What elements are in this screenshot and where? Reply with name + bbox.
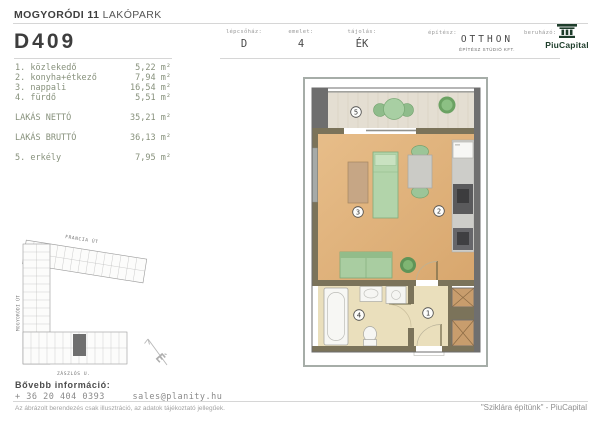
field-floor-value: 4: [276, 38, 326, 50]
architect-sub: ÉPÍTÉSZ STÚDIÓ KFT.: [452, 47, 522, 52]
living-window: [313, 148, 318, 202]
room-name: 3. nappali: [15, 83, 66, 93]
gross-value: 36,13 m²: [130, 133, 171, 143]
unit-id-underline: [14, 58, 172, 59]
dining-table: [408, 155, 432, 188]
balcony-railing: [328, 91, 478, 93]
balcony-window: [366, 130, 416, 132]
wall-interior: [312, 280, 480, 286]
room-row: 4. fürdő 5,51 m²: [15, 93, 171, 103]
room-name: 1. közlekedő: [15, 63, 76, 73]
site-highlighted-unit: [73, 334, 86, 356]
developer-name: PiuCapital: [541, 40, 593, 50]
svg-text:1: 1: [426, 309, 430, 317]
bed: [373, 152, 398, 218]
street-label-left: MOGYORÓDI ÚT: [16, 295, 21, 331]
room-name: 2. konyha+étkező: [15, 73, 97, 83]
bathtub: [324, 288, 348, 345]
balcony-area: [312, 88, 478, 128]
field-staircase-value: D: [218, 38, 270, 50]
tagline: "Sziklára építünk" - PiuCapital: [481, 403, 587, 412]
project-title: MOGYORÓDI 11 LAKÓPARK: [14, 9, 162, 21]
north-label: É: [153, 350, 169, 365]
balcony-name: 5. erkély: [15, 153, 61, 163]
gross-area-row: LAKÁS BRUTTÓ 36,13 m²: [15, 133, 171, 143]
room-number-2: 2: [434, 206, 445, 217]
room-name: 4. fürdő: [15, 93, 56, 103]
toilet: [364, 327, 377, 347]
room-area: 16,54 m²: [130, 83, 171, 93]
balcony-plant: [439, 97, 456, 114]
room-number-1: 1: [423, 308, 434, 319]
room-area: 5,22 m²: [135, 63, 171, 73]
room-number-5: 5: [351, 107, 362, 118]
net-value: 35,21 m²: [130, 113, 171, 123]
site-plan: FRANCIA ÚT MOGYORÓDI ÚT ZÁSZLÓS U. É: [15, 226, 190, 378]
room-area: 7,94 m²: [135, 73, 171, 83]
north-arrow-icon: É: [145, 339, 169, 365]
column-icon: [555, 24, 579, 39]
field-staircase-label: lépcsőház:: [218, 29, 270, 35]
field-orientation: tájolás: ÉK: [336, 29, 388, 50]
field-orientation-value: ÉK: [336, 38, 388, 50]
gross-label: LAKÁS BRUTTÓ: [15, 133, 76, 143]
washing-machine: [386, 287, 406, 304]
room-number-3: 3: [353, 207, 364, 218]
room-area: 5,51 m²: [135, 93, 171, 103]
svg-text:4: 4: [357, 311, 361, 319]
architect-name: OTTHON: [452, 34, 522, 45]
shaft-lower: [452, 320, 474, 346]
living-plant: [400, 257, 416, 273]
floorplan-datasheet: MOGYORÓDI 11 LAKÓPARK D409 lépcsőház: D …: [0, 0, 600, 424]
room-number-4: 4: [354, 310, 365, 321]
fields-underline: [220, 58, 560, 59]
room-list: 1. közlekedő 5,22 m² 2. konyha+étkező 7,…: [15, 63, 171, 163]
shaft-upper: [452, 288, 474, 307]
footer-divider: [13, 401, 588, 402]
header-divider: [13, 23, 588, 24]
info-label: Bővebb információ:: [15, 380, 110, 390]
project-title-bold: MOGYORÓDI 11: [14, 9, 99, 21]
street-label-bottom: ZÁSZLÓS U.: [57, 370, 91, 377]
room-row: 3. nappali 16,54 m²: [15, 83, 171, 93]
field-floor-label: emelet:: [276, 29, 326, 35]
field-staircase: lépcsőház: D: [218, 29, 270, 50]
project-title-rest: LAKÓPARK: [103, 9, 162, 21]
field-floor: emelet: 4: [276, 29, 326, 50]
floor-plan-frame: 5 3 2 4 1: [303, 77, 488, 367]
developer-logo: PiuCapital: [541, 24, 593, 50]
cabinet: [348, 162, 368, 203]
room-row: 2. konyha+étkező 7,94 m²: [15, 73, 171, 83]
balcony-row: 5. erkély 7,95 m²: [15, 153, 171, 163]
field-orientation-label: tájolás:: [336, 29, 388, 35]
street-label-top: FRANCIA ÚT: [65, 233, 99, 245]
kitchen-counter: [452, 140, 474, 252]
net-label: LAKÁS NETTÓ: [15, 113, 71, 123]
architect-logo: OTTHON ÉPÍTÉSZ STÚDIÓ KFT.: [452, 34, 522, 52]
room-row: 1. közlekedő 5,22 m²: [15, 63, 171, 73]
disclaimer: Az ábrázolt berendezés csak illusztráció…: [15, 405, 225, 412]
unit-id: D409: [14, 30, 76, 54]
dining-set: [408, 146, 432, 199]
svg-text:2: 2: [437, 207, 441, 215]
svg-text:3: 3: [356, 208, 360, 216]
floor-plan: 5 3 2 4 1: [310, 84, 481, 360]
sofa: [340, 252, 392, 278]
svg-text:5: 5: [354, 108, 358, 116]
balcony-area: 7,95 m²: [135, 153, 171, 163]
net-area-row: LAKÁS NETTÓ 35,21 m²: [15, 113, 171, 123]
